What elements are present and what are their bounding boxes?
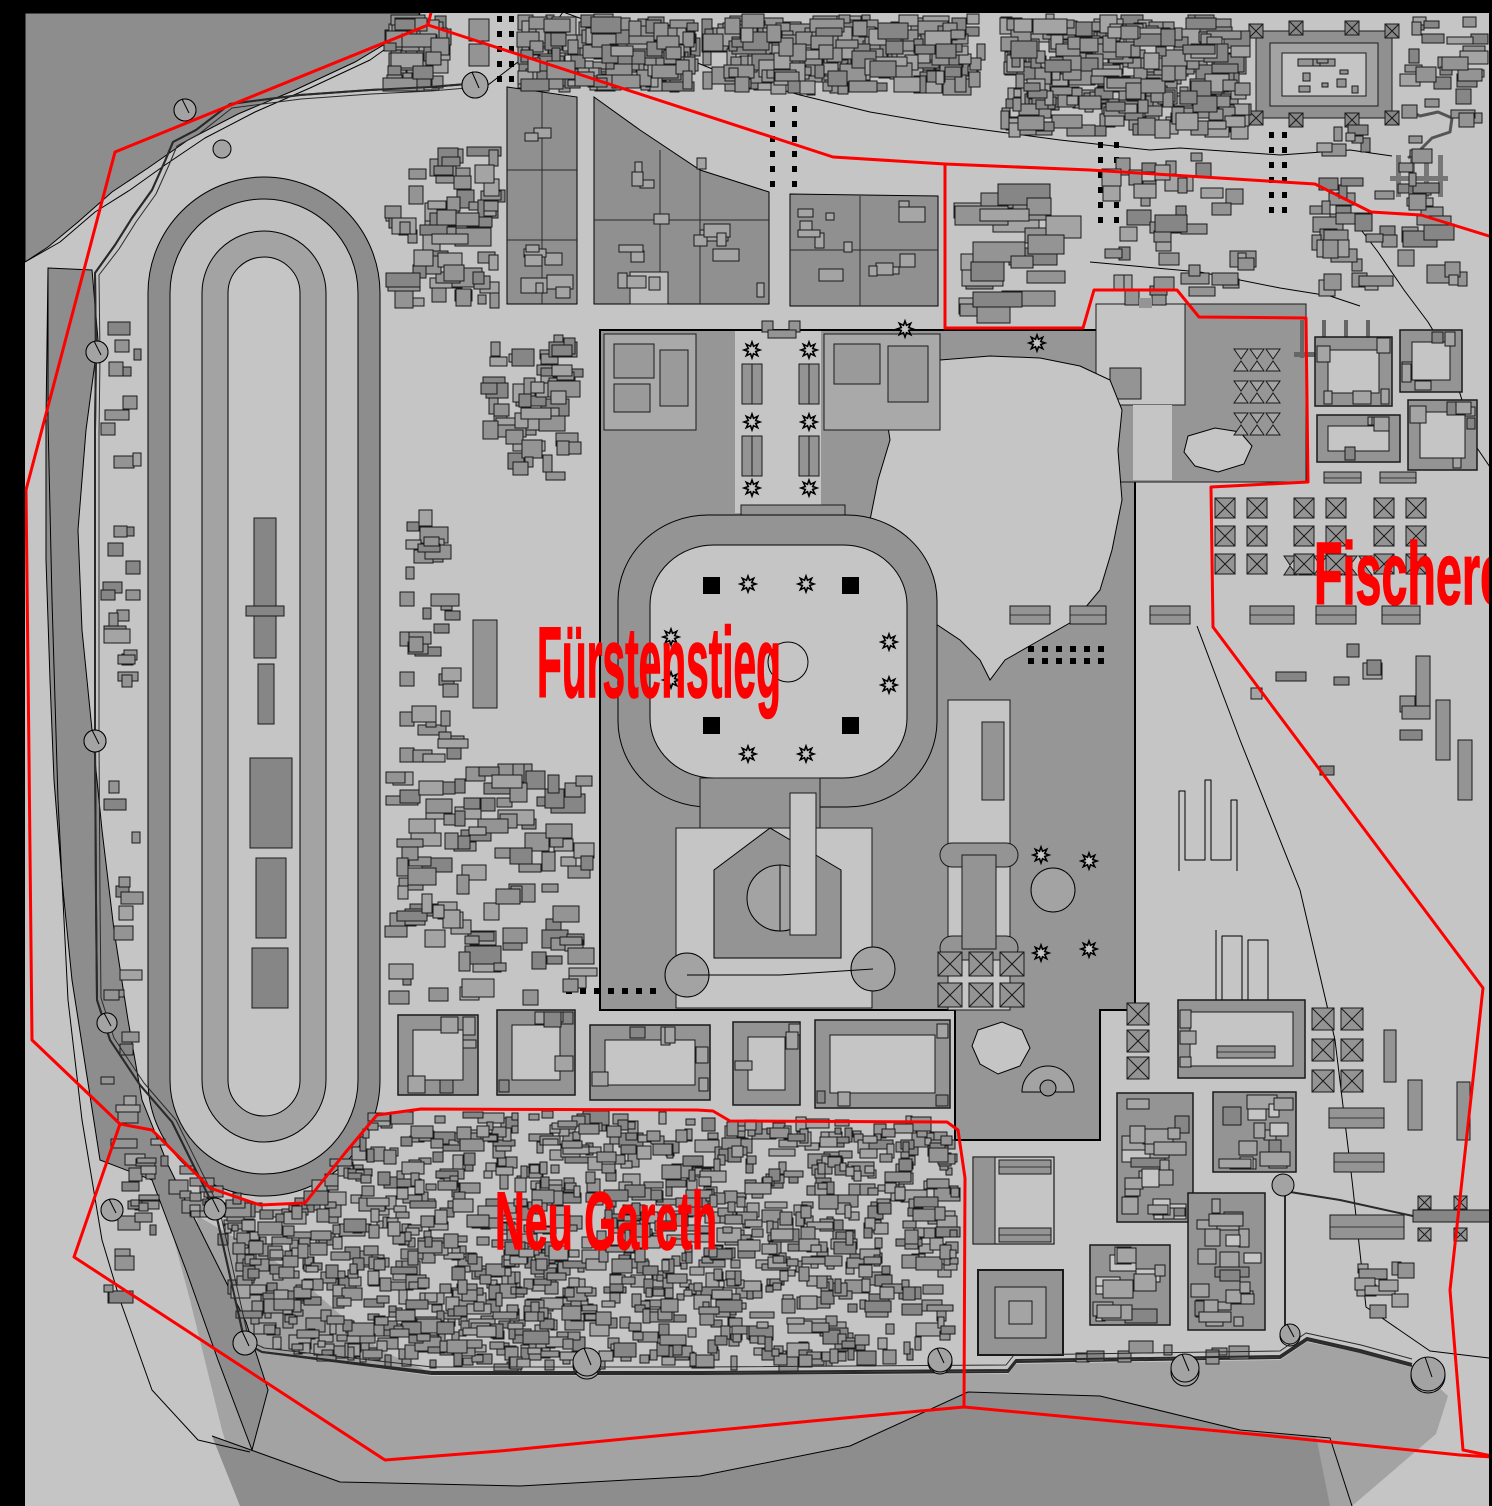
svg-text:Neu Gareth: Neu Gareth — [495, 1176, 717, 1267]
svg-text:Fürstenstieg: Fürstenstieg — [537, 607, 781, 719]
svg-text:Fischerei: Fischerei — [1314, 524, 1492, 623]
